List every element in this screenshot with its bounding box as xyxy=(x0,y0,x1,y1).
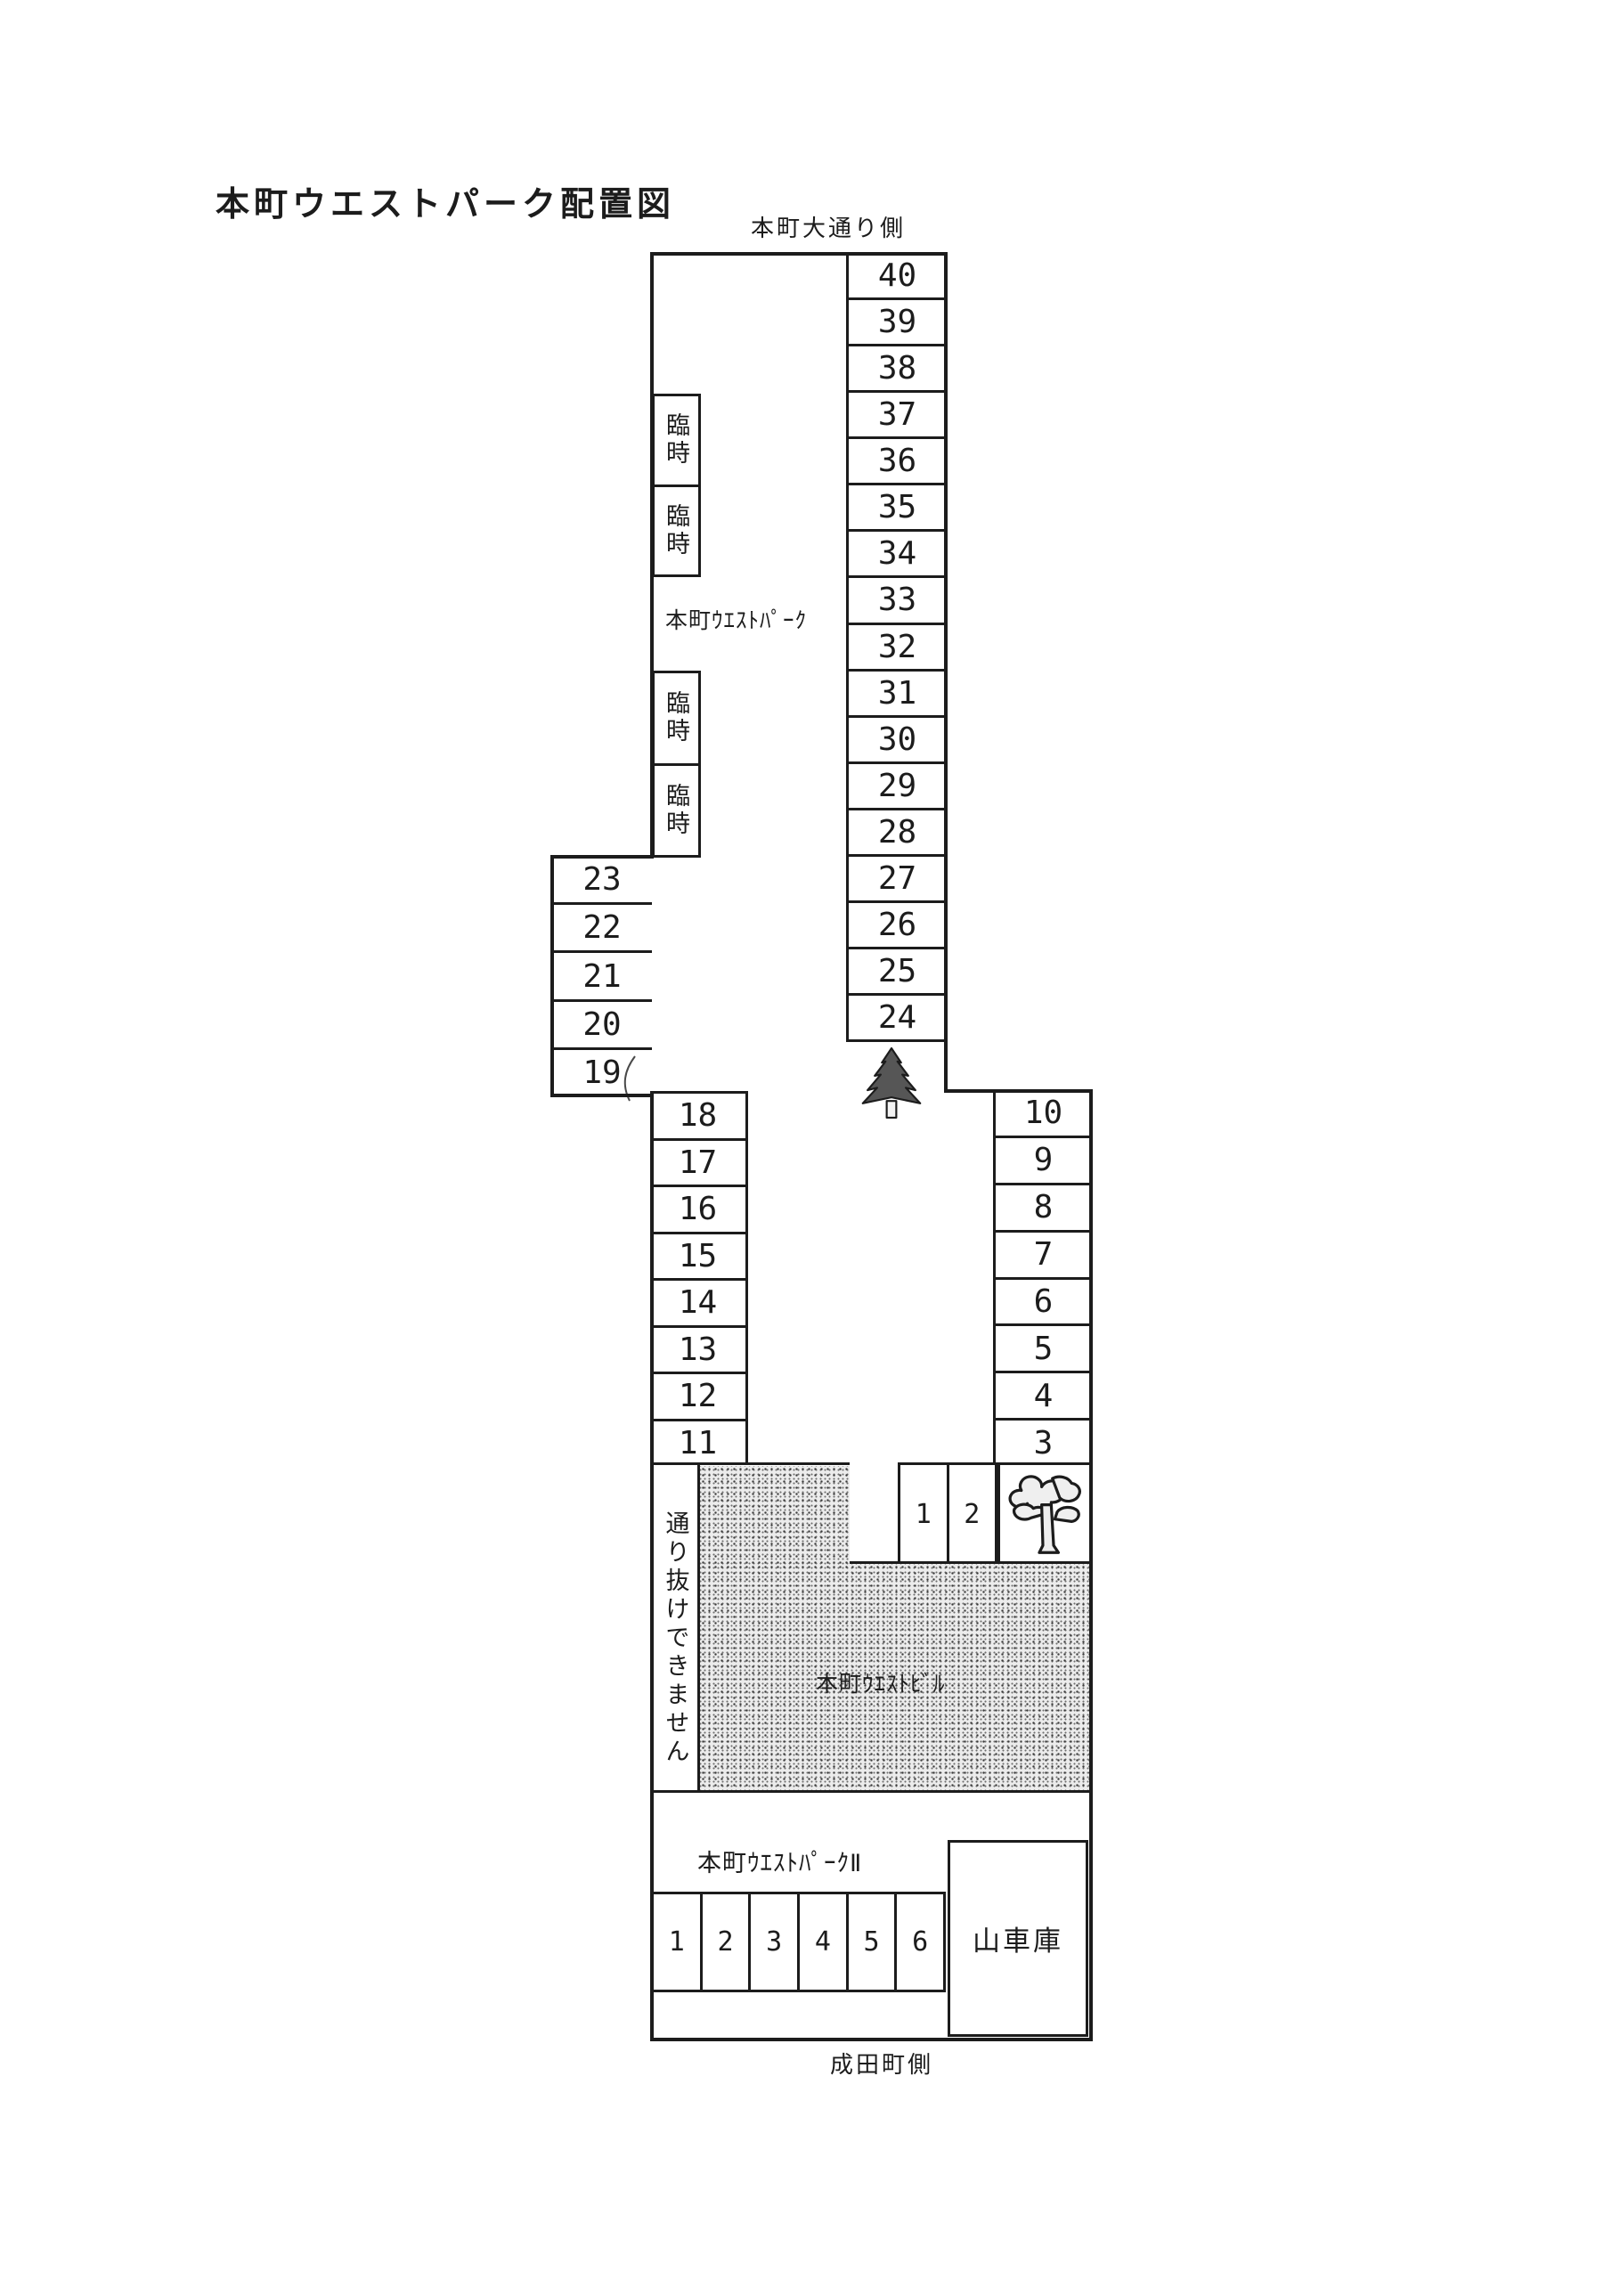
space-32: 32 xyxy=(849,625,946,672)
space-3: 3 xyxy=(996,1421,1091,1465)
space-12: 12 xyxy=(650,1374,745,1421)
space2-1: 1 xyxy=(654,1894,703,1990)
temp-space-1: 臨時 xyxy=(655,673,698,766)
space-31: 31 xyxy=(849,672,946,718)
space-40: 40 xyxy=(849,254,946,300)
space-33: 33 xyxy=(849,578,946,624)
space-39: 39 xyxy=(849,300,946,346)
middle-west-column: 1817161514131211 xyxy=(650,1091,748,1465)
space-19: 19 xyxy=(552,1050,652,1095)
space-37: 37 xyxy=(849,393,946,439)
space-25: 25 xyxy=(849,949,946,996)
space-38: 38 xyxy=(849,346,946,393)
space-30: 30 xyxy=(849,718,946,764)
space-22: 22 xyxy=(552,905,652,953)
space-13: 13 xyxy=(650,1328,745,1375)
space-35: 35 xyxy=(849,485,946,532)
space-20: 20 xyxy=(552,1002,652,1050)
space-26: 26 xyxy=(849,903,946,949)
small-spaces-row: 12 xyxy=(898,1465,997,1563)
middle-east-column: 109876543 xyxy=(993,1091,1091,1465)
space-11: 11 xyxy=(650,1421,745,1466)
space-2: 2 xyxy=(949,1465,996,1563)
space2-5: 5 xyxy=(849,1894,898,1990)
small-row-top-line xyxy=(898,1462,1091,1465)
building-bottom-line xyxy=(652,1790,1091,1793)
space2-3: 3 xyxy=(751,1894,800,1990)
space-14: 14 xyxy=(650,1281,745,1328)
space-15: 15 xyxy=(650,1234,745,1282)
temp-space-2: 臨時 xyxy=(655,766,698,856)
stem-area-label: 本町ｳｴｽﾄﾊﾟｰｸ xyxy=(665,602,807,636)
stem-west-column: 2322212019 xyxy=(552,857,652,1095)
space-24: 24 xyxy=(849,996,946,1042)
park2-spaces-row: 123456 xyxy=(651,1892,946,1992)
space-5: 5 xyxy=(996,1326,1091,1373)
space-9: 9 xyxy=(996,1138,1091,1185)
space2-4: 4 xyxy=(800,1894,849,1990)
building-west-line xyxy=(697,1462,700,1793)
space-21: 21 xyxy=(552,953,652,1001)
stem-main-column: 4039383736353433323130292827262524 xyxy=(846,254,946,1042)
no-through-notice: 通り抜けできません xyxy=(654,1500,696,1778)
space-4: 4 xyxy=(996,1373,1091,1421)
space-27: 27 xyxy=(849,857,946,903)
temporary-spaces-upper: 臨時臨時 xyxy=(652,394,701,577)
space-36: 36 xyxy=(849,439,946,485)
pine-tree-icon xyxy=(853,1046,930,1120)
space-34: 34 xyxy=(849,532,946,578)
park2-area-label: 本町ｳｴｽﾄﾊﾟｰｸⅡ xyxy=(697,1844,862,1877)
building-label: 本町ｳｴｽﾄﾋﾞﾙ xyxy=(816,1665,946,1699)
space-28: 28 xyxy=(849,810,946,857)
parking-layout-scan: 本町ウエストパーク配置図 本町大通り側 成田町側 403938373635343… xyxy=(0,0,1620,2296)
space-1: 1 xyxy=(900,1465,949,1563)
temporary-spaces-lower: 臨時臨時 xyxy=(652,671,701,858)
space-16: 16 xyxy=(650,1187,745,1234)
space-10: 10 xyxy=(996,1091,1091,1138)
space-6: 6 xyxy=(996,1280,1091,1327)
space-23: 23 xyxy=(552,857,652,905)
space-8: 8 xyxy=(996,1185,1091,1233)
broadleaf-tree-icon xyxy=(1005,1471,1088,1559)
building-main-top-line xyxy=(850,1561,1091,1564)
temp-space-1: 臨時 xyxy=(655,396,698,487)
space-7: 7 xyxy=(996,1233,1091,1280)
space-29: 29 xyxy=(849,764,946,810)
small-row-east-line xyxy=(997,1465,1000,1563)
garage-box: 山車庫 xyxy=(948,1840,1088,2037)
space2-2: 2 xyxy=(703,1894,752,1990)
space-18: 18 xyxy=(650,1094,745,1141)
garage-label: 山車庫 xyxy=(973,1918,1063,1958)
space2-6: 6 xyxy=(897,1894,943,1990)
space-17: 17 xyxy=(650,1141,745,1188)
temp-space-2: 臨時 xyxy=(655,487,698,575)
building-notch-top-line xyxy=(650,1462,850,1465)
